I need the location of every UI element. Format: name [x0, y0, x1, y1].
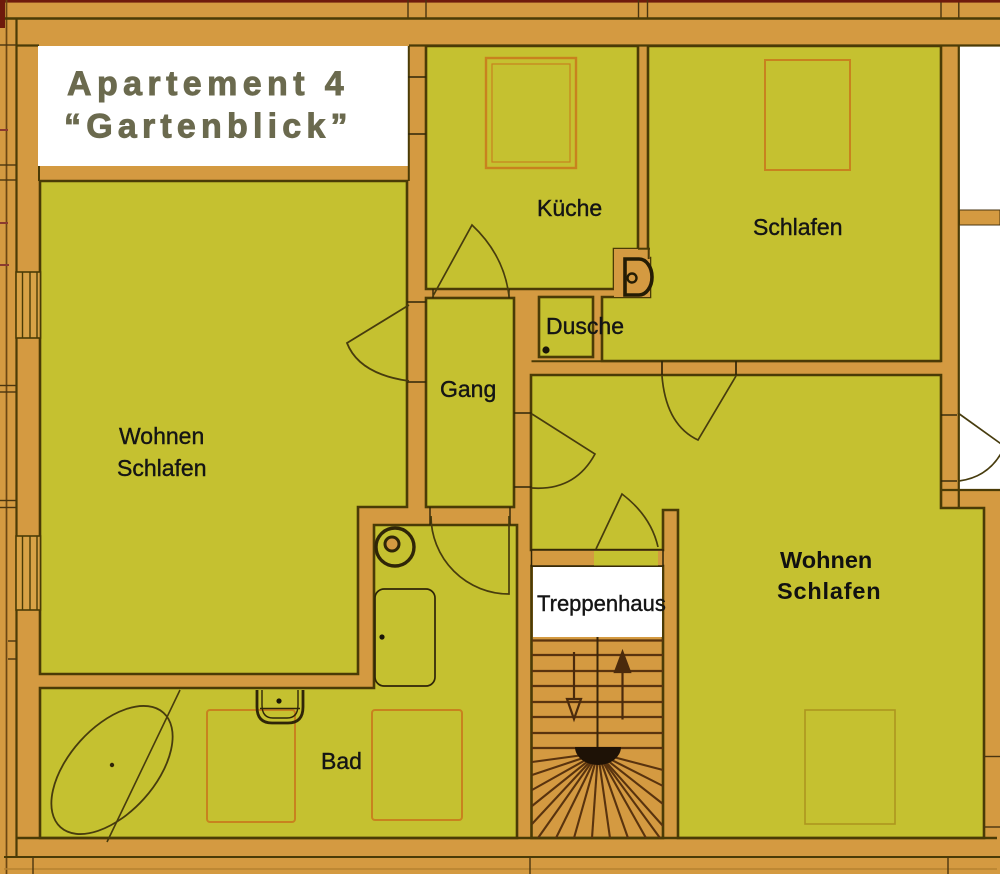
- svg-text:Schlafen: Schlafen: [777, 578, 881, 604]
- svg-text:Apartement 4: Apartement 4: [67, 65, 349, 103]
- svg-text:Treppenhaus: Treppenhaus: [537, 591, 666, 616]
- svg-text:Gang: Gang: [440, 376, 496, 402]
- svg-text:Dusche: Dusche: [546, 313, 624, 339]
- svg-text:Schlafen: Schlafen: [753, 214, 843, 240]
- svg-text:Wohnen: Wohnen: [119, 423, 204, 449]
- svg-text:“Gartenblick”: “Gartenblick”: [64, 108, 353, 146]
- svg-text:Bad: Bad: [321, 748, 362, 774]
- svg-text:Küche: Küche: [537, 195, 602, 221]
- svg-text:Schlafen: Schlafen: [117, 455, 207, 481]
- svg-text:Wohnen: Wohnen: [780, 547, 872, 573]
